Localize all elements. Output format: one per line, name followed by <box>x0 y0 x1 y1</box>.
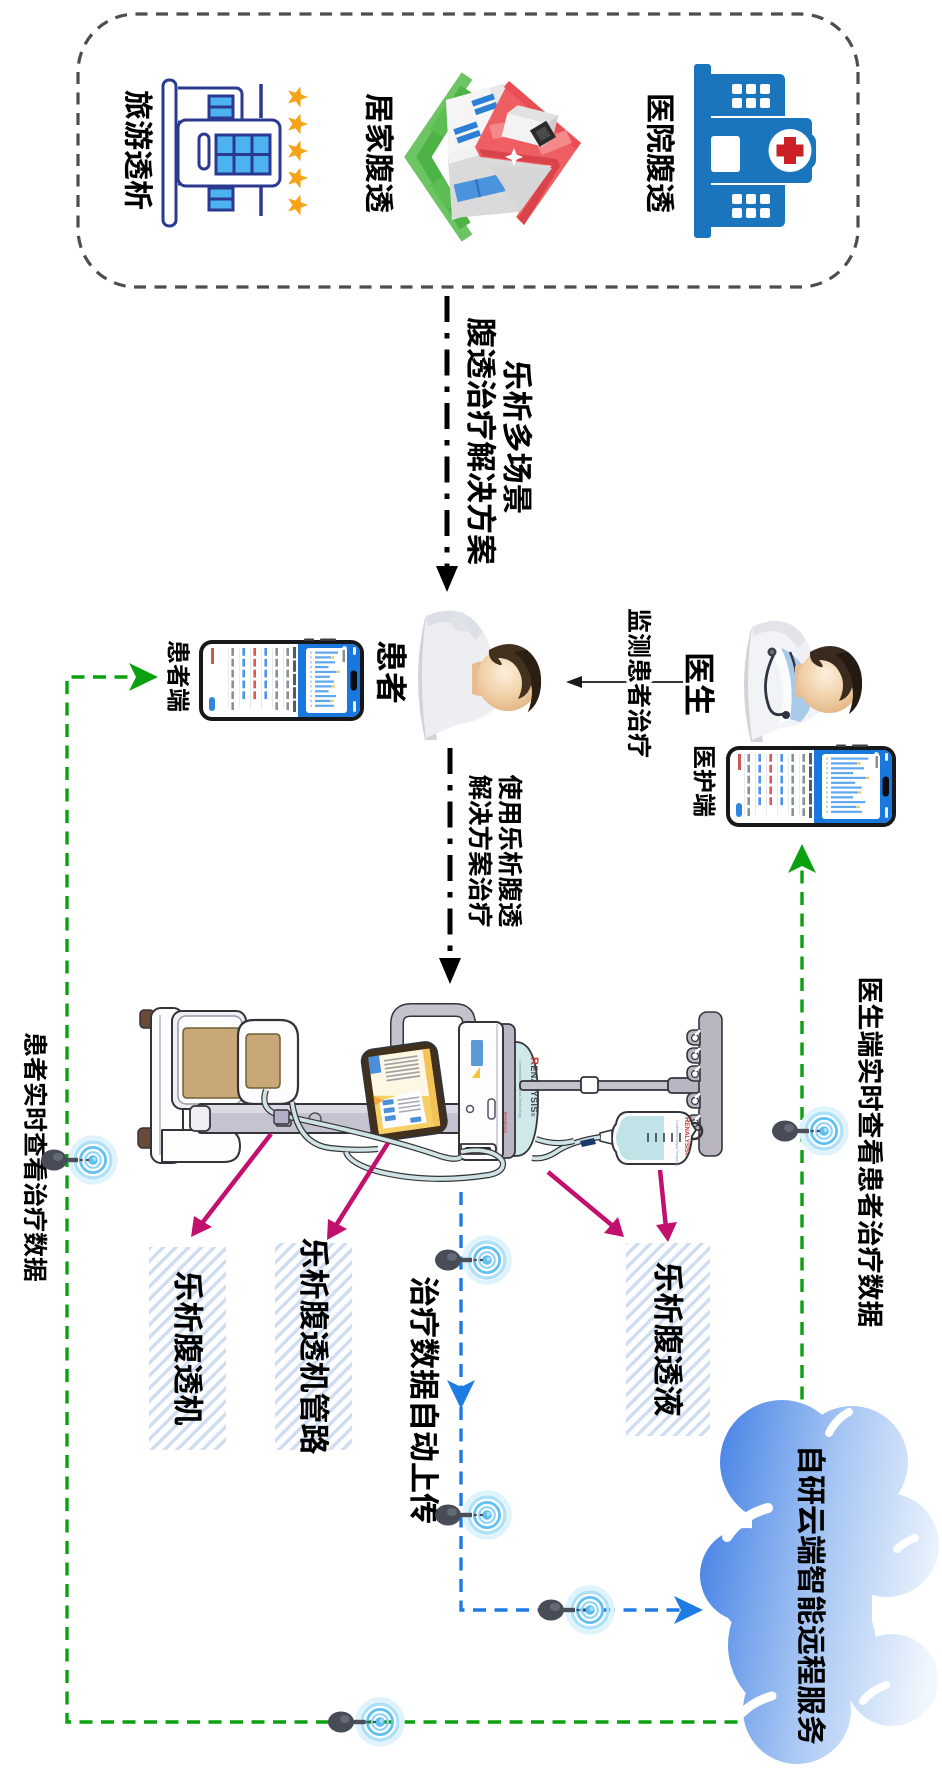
svg-text:Renalysis: Renalysis <box>503 1112 508 1134</box>
svg-text:RENALYSIS®: RENALYSIS® <box>683 1117 692 1156</box>
svg-text:Comfortable Dialysis Technolog: Comfortable Dialysis Technology <box>675 1120 679 1167</box>
